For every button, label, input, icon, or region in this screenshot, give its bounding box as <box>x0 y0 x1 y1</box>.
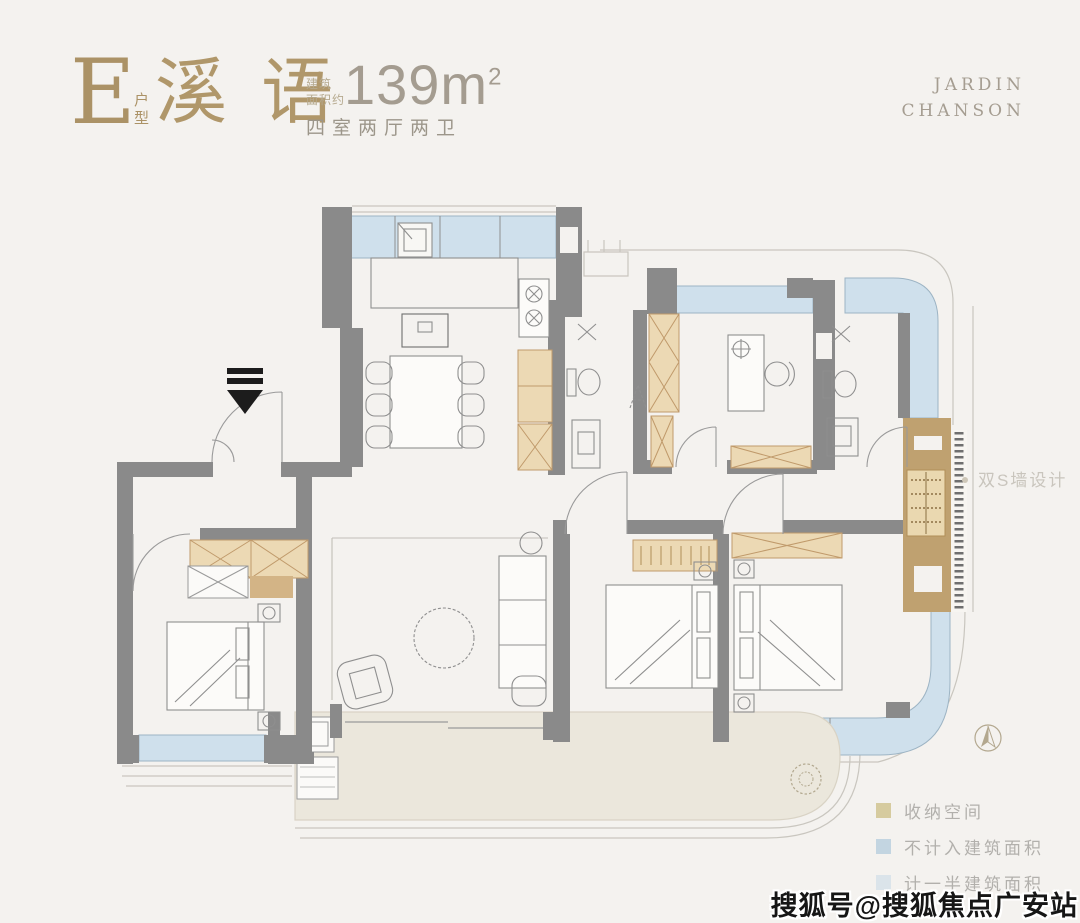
rooms-summary: 四室两厅两卫 <box>306 113 462 140</box>
unit-type-label: 户型 <box>130 92 151 128</box>
legend-swatch-excluded <box>876 839 891 854</box>
legend-item-excluded-area: 不计入建筑面积 <box>876 834 1044 859</box>
floorplan-page: { "header": { "unit_letter": "E", "unit_… <box>0 0 1080 922</box>
bed-middle <box>606 562 718 688</box>
washing-machine-icon <box>398 223 432 257</box>
legend-swatch-storage <box>876 803 891 818</box>
legend-item-storage: 收纳空间 <box>876 798 1044 823</box>
entrance-arrow-icon <box>227 368 263 414</box>
watermark: 搜狐号@搜狐焦点广安站 <box>771 884 1078 923</box>
bullet-icon <box>962 477 968 483</box>
compass-icon <box>975 725 1001 751</box>
swall-annotation: 双S墙设计 <box>962 466 1067 491</box>
dining-set <box>366 356 484 448</box>
white-cabinet <box>188 566 248 598</box>
rug <box>414 608 474 668</box>
bed-right <box>734 560 842 712</box>
living-room-furniture <box>332 532 548 712</box>
brand-logo: JARDIN CHANSON <box>895 72 1025 125</box>
stove-icon <box>519 279 549 337</box>
unit-letter: E <box>70 48 136 138</box>
bed-left <box>167 604 280 730</box>
area-value: 139m2 <box>344 52 502 117</box>
area-label: 建筑 面积约 <box>306 76 345 108</box>
bathroom-1 <box>567 324 600 468</box>
floorplan-drawing <box>0 0 1080 922</box>
s-wall <box>903 418 967 612</box>
study-furniture <box>728 335 794 411</box>
